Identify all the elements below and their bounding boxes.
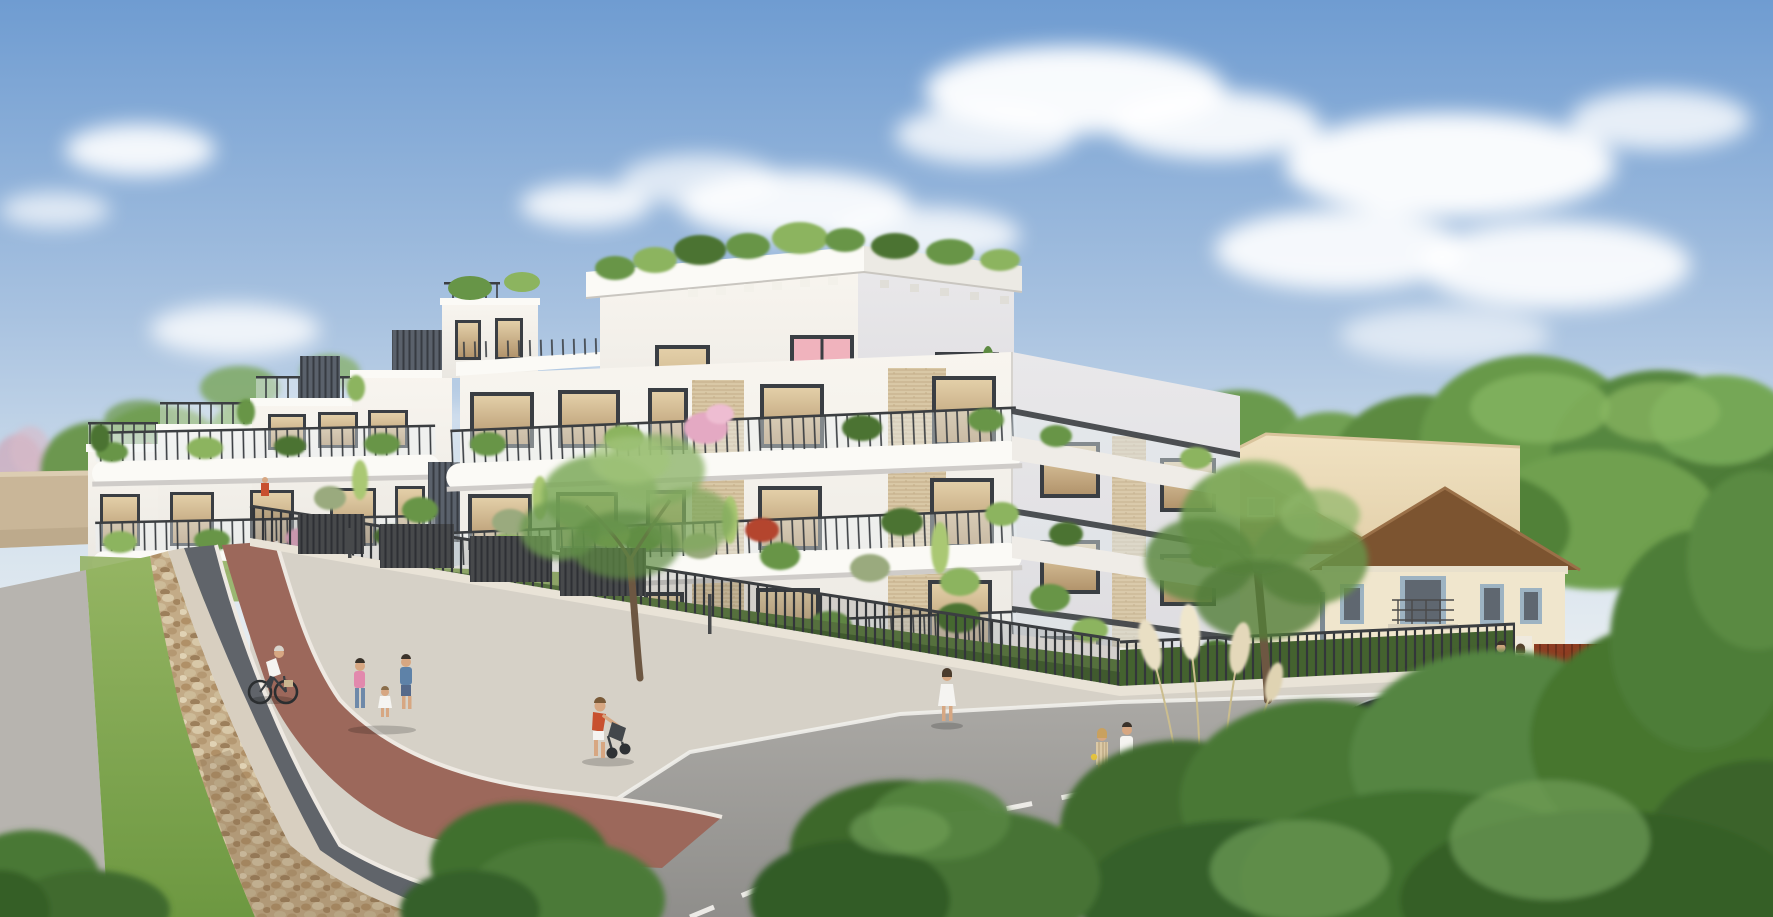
render-viewport [0, 0, 1773, 917]
architectural-render [0, 0, 1773, 917]
balcony-person [261, 477, 269, 496]
